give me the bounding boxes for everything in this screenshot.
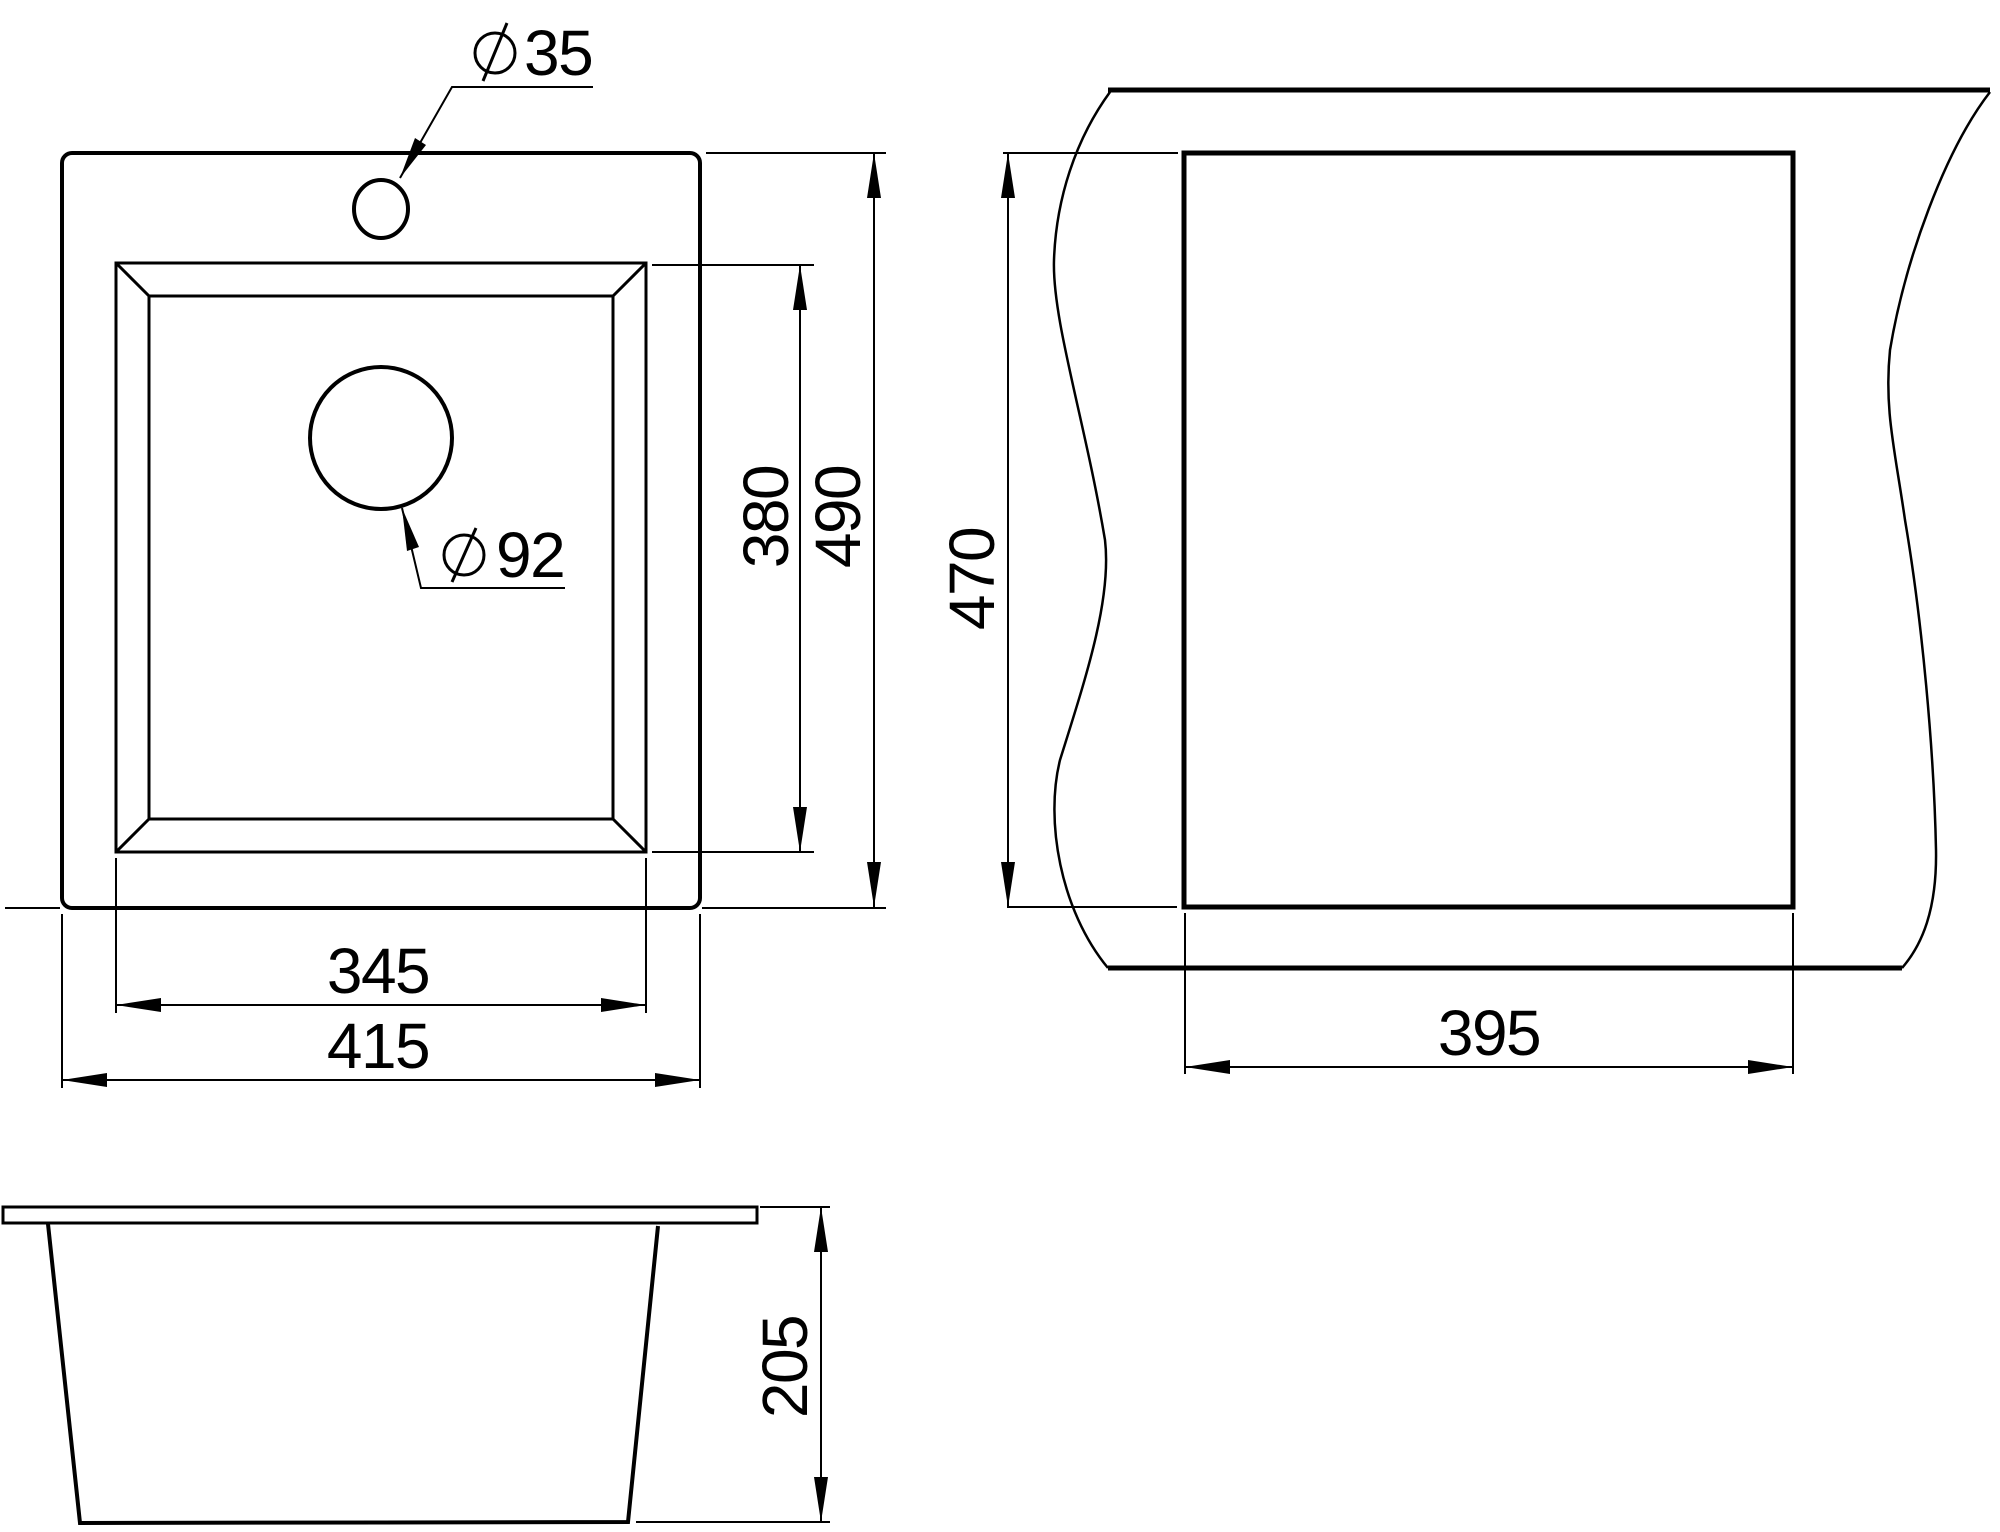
drain-diameter-value: 92 (496, 519, 564, 591)
height-value: 205 (749, 1316, 821, 1418)
bowl-width-value: 345 (327, 935, 429, 1007)
bowl-depth-value: 380 (730, 466, 802, 568)
background (0, 0, 2000, 1532)
sink-dimension-drawing: 35 92 345 415 (0, 0, 2000, 1532)
overall-depth-value: 490 (802, 466, 874, 568)
cutout-depth-value: 470 (936, 528, 1008, 630)
cutout-width-value: 395 (1438, 997, 1540, 1069)
technical-drawing-sheet: 35 92 345 415 (0, 0, 2000, 1532)
overall-width-value: 415 (327, 1010, 429, 1082)
faucet-diameter-value: 35 (524, 17, 592, 89)
